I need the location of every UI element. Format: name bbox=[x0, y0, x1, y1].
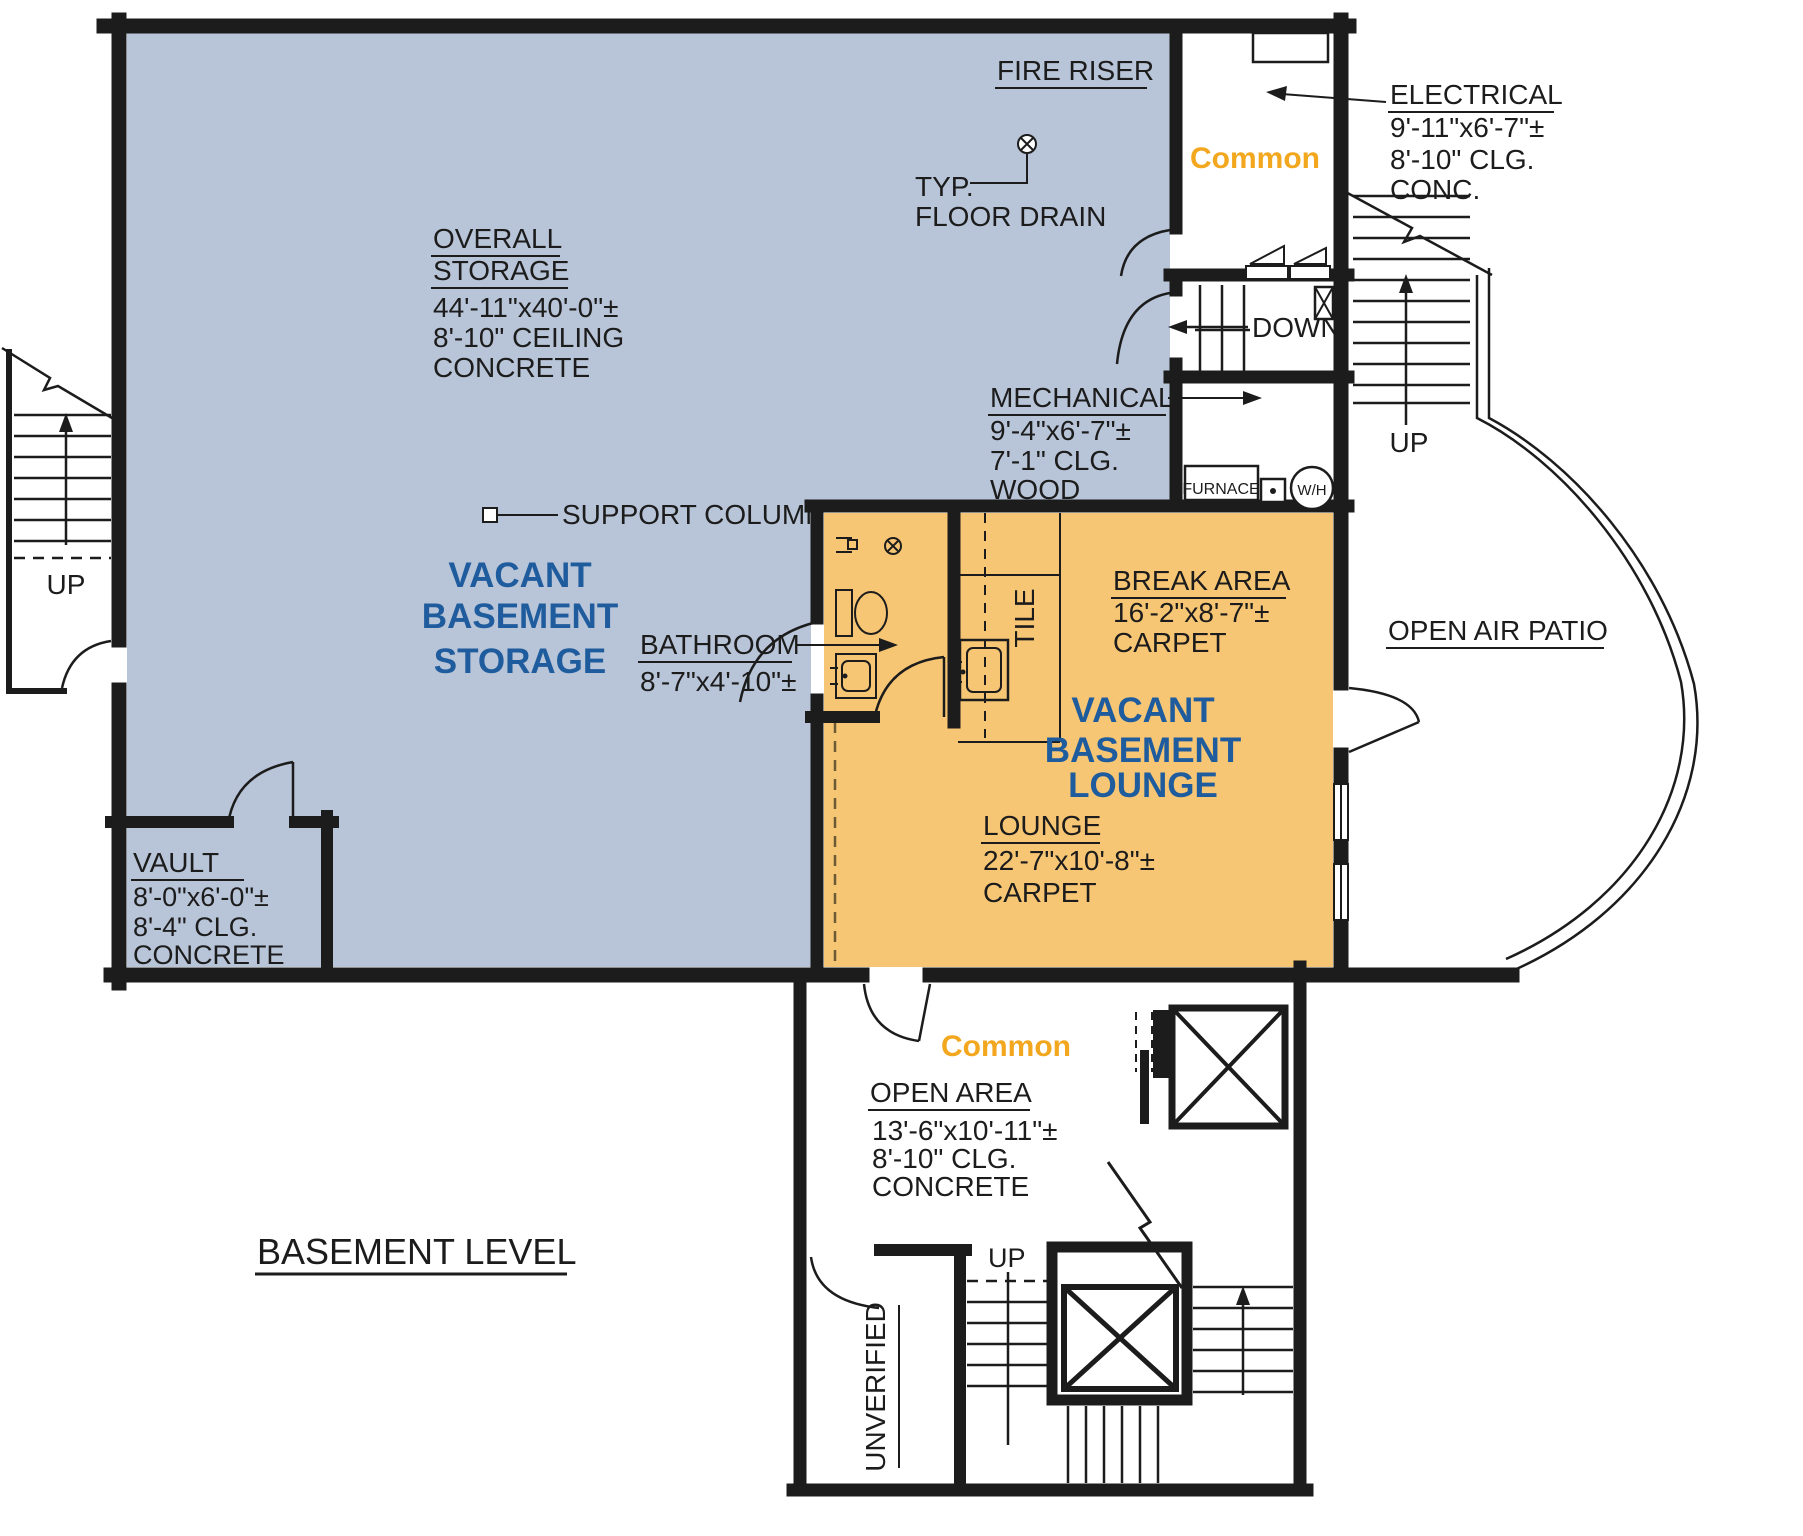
floor-drain-note-line2: FLOOR DRAIN bbox=[915, 201, 1106, 232]
room-label: BREAK AREA bbox=[1113, 565, 1291, 596]
break-line-icon bbox=[2, 348, 112, 418]
elevator-shaft-icon bbox=[1052, 1247, 1187, 1400]
room-floor: CONCRETE bbox=[433, 352, 590, 383]
door-sill-icon bbox=[1246, 246, 1330, 279]
right-exterior-stair bbox=[1342, 190, 1492, 425]
vacant-basement-storage-label: VACANT BASEMENT STORAGE bbox=[422, 556, 618, 681]
common-room-fixtures bbox=[1253, 33, 1328, 62]
room-label: VAULT bbox=[133, 847, 219, 878]
room-label: ELECTRICAL bbox=[1390, 79, 1563, 110]
counter-icon bbox=[1253, 33, 1328, 62]
fire-riser-label: FIRE RISER bbox=[997, 55, 1154, 86]
room-label: STORAGE bbox=[433, 255, 569, 286]
support-column-label: SUPPORT COLUMN bbox=[562, 499, 825, 530]
room-label: OVERALL bbox=[433, 223, 562, 254]
open-area-label: OPEN AREA 13'-6"x10'-11"± 8'-10" CLG. CO… bbox=[868, 1077, 1058, 1202]
up-bottom-label: UP bbox=[988, 1243, 1026, 1273]
room-dim: 13'-6"x10'-11"± bbox=[872, 1115, 1058, 1146]
room-label: LOUNGE bbox=[983, 810, 1101, 841]
water-heater-label: W/H bbox=[1297, 482, 1326, 499]
floor-plan: FURNACE W/H FIRE R bbox=[0, 0, 1803, 1536]
room-floor: CONCRETE bbox=[133, 940, 285, 970]
room-name: LOUNGE bbox=[1068, 766, 1218, 805]
room-name: VACANT bbox=[1071, 691, 1214, 730]
arrow-icon bbox=[1243, 391, 1262, 405]
room-label: MECHANICAL bbox=[990, 382, 1174, 413]
room-floor: CONC. bbox=[1390, 174, 1480, 205]
lobby-door bbox=[1136, 1012, 1152, 1124]
door-swing-icon bbox=[864, 984, 930, 1041]
elevator-shaft-icon bbox=[1172, 1008, 1285, 1126]
furnace-label: FURNACE bbox=[1182, 481, 1259, 498]
room-dim: 16'-2"x8'-7"± bbox=[1113, 597, 1269, 628]
common-upper-label: Common bbox=[1190, 142, 1320, 175]
room-floor: CARPET bbox=[1113, 627, 1227, 658]
room-ceiling: 8'-4" CLG. bbox=[133, 912, 257, 942]
arrow-icon bbox=[1266, 86, 1287, 101]
up-arrow-icon bbox=[1236, 1286, 1250, 1305]
room-ceiling: 7'-1" CLG. bbox=[990, 445, 1119, 476]
room-label: UNVERIFIED bbox=[860, 1302, 891, 1472]
down-arrow-icon bbox=[1168, 320, 1187, 334]
page-title: BASEMENT LEVEL bbox=[257, 1231, 576, 1272]
room-name: BASEMENT bbox=[1045, 731, 1241, 770]
electrical-label: ELECTRICAL 9'-11"x6'-7"± 8'-10" CLG. CON… bbox=[1388, 79, 1563, 205]
room-ceiling: 8'-10" CEILING bbox=[433, 322, 624, 353]
room-label: OPEN AREA bbox=[870, 1077, 1032, 1108]
unverified-label: UNVERIFIED bbox=[860, 1302, 899, 1472]
door-swing-icon bbox=[811, 1257, 879, 1308]
room-floor: WOOD bbox=[990, 474, 1080, 505]
bottom-stairs bbox=[967, 1162, 1293, 1483]
room-floor: CONCRETE bbox=[872, 1171, 1029, 1202]
room-dim: 44'-11"x40'-0"± bbox=[433, 292, 619, 323]
room-dim: 8'-0"x6'-0"± bbox=[133, 882, 269, 912]
room-dim: 22'-7"x10'-8"± bbox=[983, 845, 1155, 876]
up-right-label: UP bbox=[1390, 427, 1429, 458]
open-air-patio-label: OPEN AIR PATIO bbox=[1388, 615, 1608, 646]
tile-label: TILE bbox=[1009, 588, 1040, 647]
room-floor: CARPET bbox=[983, 877, 1097, 908]
room-name: BASEMENT bbox=[422, 597, 618, 636]
floor-drain-note-line1: TYP. bbox=[915, 171, 974, 202]
up-left-label: UP bbox=[47, 569, 86, 600]
room-dim: 9'-4"x6'-7"± bbox=[990, 415, 1131, 446]
vacant-basement-lounge-label: VACANT BASEMENT LOUNGE bbox=[1045, 691, 1241, 805]
door-leaf-icon bbox=[1140, 1050, 1149, 1124]
room-ceiling: 8'-10" CLG. bbox=[872, 1143, 1016, 1174]
up-arrow-icon bbox=[1399, 274, 1413, 293]
room-ceiling: 8'-10" CLG. bbox=[1390, 144, 1534, 175]
common-lower-label: Common bbox=[941, 1030, 1071, 1063]
door-swing-icon bbox=[62, 641, 111, 688]
room-dim: 9'-11"x6'-7"± bbox=[1390, 112, 1544, 143]
room-label: BATHROOM bbox=[640, 629, 800, 660]
room-name: VACANT bbox=[448, 556, 591, 595]
left-exterior-stair bbox=[2, 348, 112, 691]
down-label: DOWN bbox=[1252, 312, 1341, 343]
door-swing-icon bbox=[1349, 688, 1419, 752]
room-dim: 8'-7"x4'-10"± bbox=[640, 666, 796, 697]
bathroom-label: BATHROOM 8'-7"x4'-10"± bbox=[638, 629, 800, 697]
break-line-icon bbox=[1108, 1162, 1182, 1288]
room-name: STORAGE bbox=[434, 642, 606, 681]
